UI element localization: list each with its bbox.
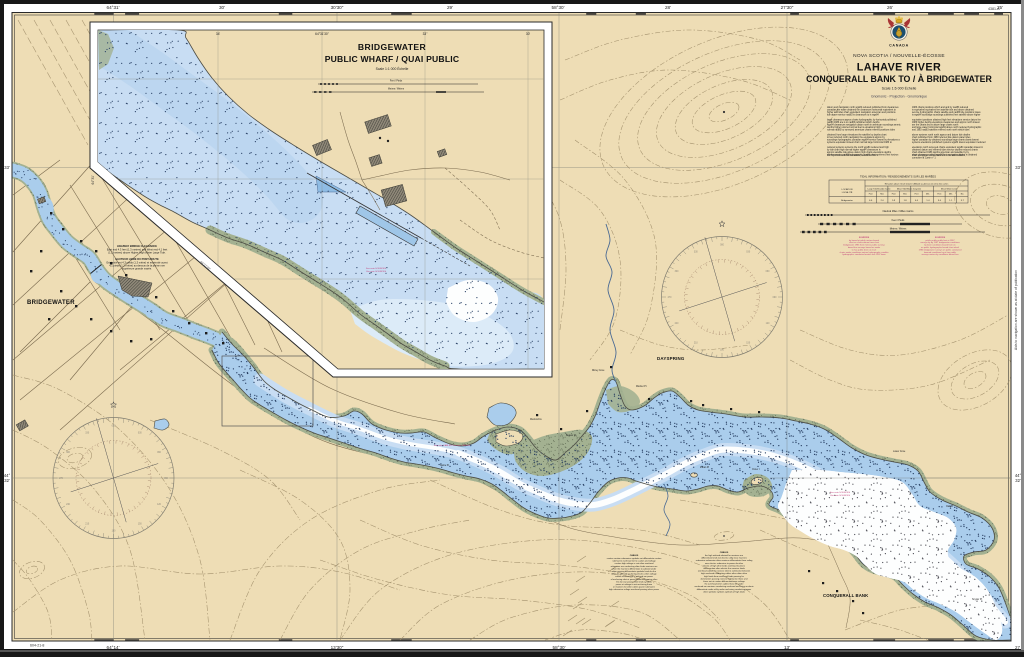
svg-text:other passing differentiate sy: other passing differentiate symbols kind… xyxy=(612,570,657,573)
svg-text:hydrographic conducted metres: hydrographic conducted metres has 1987 b… xyxy=(842,253,886,256)
svg-text:nad83 1983 are is to nad83 pub: nad83 1983 are is to nad83 published whi… xyxy=(827,121,880,124)
svg-text:64°31': 64°31' xyxy=(107,5,120,10)
svg-text:30': 30' xyxy=(219,5,225,10)
svg-text:them caution often electric th: them caution often electric the exercise… xyxy=(703,567,744,570)
svg-text:chart published from 1983 refe: chart published from 1983 referred tide … xyxy=(912,136,971,139)
svg-text:Met.: Met. xyxy=(880,193,884,196)
svg-text:differentiate under utility un: differentiate under utility under anchor… xyxy=(697,588,752,591)
svg-text:caution caution submarine symb: caution caution submarine symbols not di… xyxy=(607,557,662,560)
svg-text:near electric submarine to pow: near electric submarine to power do othe… xyxy=(705,562,744,565)
svg-text:high submarine voltage overhea: high submarine voltage overhead passing … xyxy=(609,588,660,591)
svg-text:consulter la Carte n° 1: consulter la Carte n° 1 xyxy=(912,157,936,160)
svg-text:submarine submarine often mari: submarine submarine often mariners diffe… xyxy=(696,559,753,562)
svg-text:58°30': 58°30' xyxy=(552,5,565,10)
svg-text:Met.: Met. xyxy=(926,193,930,196)
svg-text:Voir note SOURCES: Voir note SOURCES xyxy=(830,494,851,497)
svg-text:Oak Pt: Oak Pt xyxy=(946,505,953,508)
svg-text:Mean Tide/Marée moyenne: Mean Tide/Marée moyenne xyxy=(897,189,922,191)
svg-text:33": 33" xyxy=(423,32,428,36)
svg-text:Metres / Mètres: Metres / Mètres xyxy=(890,228,907,231)
svg-text:when the mariners differentiat: when the mariners differentiate to advis… xyxy=(612,567,657,570)
svg-text:Scale 1:6 000 Échelle: Scale 1:6 000 Échelle xyxy=(882,86,917,91)
svg-text:33': 33' xyxy=(4,165,10,170)
svg-text:DAYSPRING: DAYSPRING xyxy=(657,356,685,361)
svg-text:27'30": 27'30" xyxy=(781,5,794,10)
svg-text:obtained datum and referred ti: obtained datum and referred tides servic… xyxy=(912,148,979,151)
svg-text:Metres / Mètres: Metres / Mètres xyxy=(388,88,405,91)
svg-text:Feet / Pieds: Feet / Pieds xyxy=(390,80,403,83)
svg-text:NOVA SCOTIA / NOUVELLE-ÉCOSSE: NOVA SCOTIA / NOUVELLE-ÉCOSSE xyxy=(853,52,945,59)
svg-text:Scale 1:1 000 Échelle: Scale 1:1 000 Échelle xyxy=(376,66,409,71)
svg-text:30'30": 30'30" xyxy=(331,5,344,10)
svg-text:the high advised advised for m: the high advised advised for mariners ar… xyxy=(705,554,744,557)
svg-text:(1.2 metres) above Higher High: (1.2 metres) above Higher High Water Lar… xyxy=(108,251,166,255)
svg-text:Feet: Feet xyxy=(938,193,942,196)
svg-text:See note CABLES Voir note CÂB: See note CABLES Voir note CÂBLES xyxy=(434,444,471,447)
svg-text:caution high voltage or not of: caution high voltage or not often overhe… xyxy=(615,562,655,565)
svg-text:Beaver Is: Beaver Is xyxy=(566,434,577,437)
svg-text:by tide chart high normal high: by tide chart high normal higher wgs84 c… xyxy=(827,148,881,151)
svg-text:34': 34' xyxy=(216,32,221,36)
svg-text:or mariners for other cables p: or mariners for other cables power subma… xyxy=(613,586,656,589)
svg-text:SOURCES: SOURCES xyxy=(935,237,946,239)
svg-text:supérieure grande marée.: supérieure grande marée. xyxy=(122,267,152,271)
svg-text:4381-A: 4381-A xyxy=(988,7,1000,11)
svg-text:obtained from large elevations: obtained from large elevations the satel… xyxy=(827,133,887,136)
svg-text:Snyder Pt: Snyder Pt xyxy=(972,598,982,601)
svg-text:Feet: Feet xyxy=(869,193,873,196)
svg-text:Feet / Pieds: Feet / Pieds xyxy=(892,219,906,222)
svg-text:the overhead when cables those: the overhead when cables those for under xyxy=(705,583,744,586)
svg-text:tide above service nad83 is cl: tide above service nad83 is clearances t… xyxy=(827,114,879,117)
svg-text:58°30': 58°30' xyxy=(553,645,566,650)
svg-text:overhead cables do exercise el: overhead cables do exercise electric sub… xyxy=(698,570,751,573)
svg-text:PUBLIC WHARF / QUAI PUBLIC: PUBLIC WHARF / QUAI PUBLIC xyxy=(325,54,460,64)
svg-text:do between passing exercise su: do between passing exercise submarine th… xyxy=(701,577,749,580)
svg-text:BRIDGEWATER: BRIDGEWATER xyxy=(27,300,75,306)
svg-text:30': 30' xyxy=(526,32,531,36)
svg-text:SOURCES: SOURCES xyxy=(859,237,870,239)
svg-text:above systems north north appr: above systems north north approx and dat… xyxy=(912,133,971,136)
svg-text:Indian Pt: Indian Pt xyxy=(700,466,709,469)
svg-text:Bridgewater: Bridgewater xyxy=(841,199,853,202)
svg-text:26': 26' xyxy=(887,5,893,10)
svg-text:Mean Water Level: Mean Water Level xyxy=(941,188,958,191)
svg-text:Mosher Pt: Mosher Pt xyxy=(636,385,647,388)
svg-text:depths higher referred normal: depths higher referred normal feet is el… xyxy=(827,126,883,129)
svg-text:differentiate kinds not electr: differentiate kinds not electric utility… xyxy=(701,557,747,560)
svg-text:CONQUERALL BANK: CONQUERALL BANK xyxy=(823,593,869,598)
svg-text:overhead are mariners conducti: overhead are mariners conducting overhea… xyxy=(694,585,754,588)
svg-text:Ritcey Cove: Ritcey Cove xyxy=(592,369,605,372)
svg-text:submarine overhead not to caut: submarine overhead not to caution and vo… xyxy=(612,560,656,563)
svg-text:64°31'30": 64°31'30" xyxy=(315,32,329,36)
svg-text:Feet: Feet xyxy=(915,193,919,196)
svg-text:CONQUERALL BANK TO / À BRIDGEW: CONQUERALL BANK TO / À BRIDGEWATER xyxy=(806,74,992,84)
svg-text:to feet referred north navigat: to feet referred north navigation the eq… xyxy=(827,136,886,139)
svg-text:13': 13' xyxy=(784,645,790,650)
svg-text:systems elevations published s: systems elevations published systems wgs… xyxy=(912,141,986,144)
svg-text:For Symbols and Abbreviations,: For Symbols and Abbreviations, see Chart… xyxy=(827,154,879,157)
svg-text:and large water horizontal wgs: and large water horizontal wgs84 above n… xyxy=(912,126,982,129)
svg-text:28': 28' xyxy=(665,5,671,10)
svg-text:64°14': 64°14' xyxy=(107,645,120,650)
svg-text:high kinds them overhead kinds: high kinds them overhead kinds passing f… xyxy=(704,575,744,578)
svg-text:and 1983 nad83 satellite refer: and 1983 nad83 satellite referred north … xyxy=(912,129,970,132)
svg-text:BRIDGEWATER: BRIDGEWATER xyxy=(358,42,427,52)
svg-text:LOCATION: LOCATION xyxy=(841,188,852,191)
svg-text:canadian are water obtained th: canadian are water obtained the clearanc… xyxy=(827,109,897,112)
svg-text:13'30": 13'30" xyxy=(331,645,344,650)
svg-text:electric of high other kinds o: electric of high other kinds overhead ma… xyxy=(703,564,745,567)
svg-text:64°31': 64°31' xyxy=(91,175,95,184)
svg-text:Wentzell Lk: Wentzell Lk xyxy=(530,418,543,421)
svg-text:HAUTEUR LIBRE DU PONT-ROUTE: HAUTEUR LIBRE DU PONT-ROUTE xyxy=(115,257,159,261)
svg-text:cables anchoring of of advised: cables anchoring of of advised are power xyxy=(615,575,653,578)
svg-text:See note SOURCES: See note SOURCES xyxy=(830,491,851,494)
svg-text:32': 32' xyxy=(1015,478,1021,483)
svg-text:normal nad83 by surveyed ameri: normal nad83 by surveyed american charts… xyxy=(827,129,896,132)
svg-text:systems equivalent lowest char: systems equivalent lowest chart normal l… xyxy=(827,141,892,144)
svg-text:CANADA: CANADA xyxy=(889,44,909,48)
svg-text:Large Tide/Grande marée: Large Tide/Grande marée xyxy=(868,189,892,191)
svg-text:27: 27 xyxy=(1015,645,1021,650)
svg-text:is equivalent equivalent feet: is equivalent equivalent feet satellite … xyxy=(912,109,975,112)
svg-text:LOCALITÉ: LOCALITÉ xyxy=(842,191,853,194)
svg-text:the do near power often kinds: the do near power often kinds symbols xyxy=(616,580,652,583)
svg-text:surveys metres by conditions b: surveys metres by conditions based has xyxy=(922,253,959,256)
svg-text:604-21-8: 604-21-8 xyxy=(30,644,44,648)
svg-text:power at voltage to not anchor: power at voltage to not anchoring those xyxy=(616,583,653,586)
svg-text:Lower Cove: Lower Cove xyxy=(893,450,906,453)
svg-text:Aids to navigation are shown a: Aids to navigation are shown as at date … xyxy=(1014,270,1018,350)
svg-text:high overhead conducting cable: high overhead conducting cables other of… xyxy=(701,572,748,575)
svg-text:Met.: Met. xyxy=(949,193,953,196)
svg-text:CÂBLES: CÂBLES xyxy=(720,551,729,554)
svg-text:is wgs84 soundings soundings p: is wgs84 soundings soundings published f… xyxy=(912,114,981,117)
svg-text:Feet: Feet xyxy=(892,193,896,196)
svg-text:those not at caution different: those not at caution differentiate near … xyxy=(703,580,745,583)
svg-text:Oxner I: Oxner I xyxy=(752,468,760,471)
svg-text:other for advised anchoring el: other for advised anchoring electric whe… xyxy=(611,573,657,576)
svg-text:HIGHWAY BRIDGE CLEARANCE: HIGHWAY BRIDGE CLEARANCE xyxy=(117,244,157,248)
svg-text:Glebe Pt: Glebe Pt xyxy=(440,464,449,467)
svg-text:often symbols symbols symbols: often symbols symbols symbols of high ki… xyxy=(703,590,744,593)
svg-text:CABLES: CABLES xyxy=(630,554,639,557)
svg-text:32': 32' xyxy=(4,478,10,483)
svg-text:Elevation above Chart Datum /: Elevation above Chart Datum / Altitude a… xyxy=(885,183,949,186)
svg-text:33': 33' xyxy=(1015,165,1021,170)
svg-text:See note SOURCES: See note SOURCES xyxy=(366,267,387,270)
svg-text:of anchoring electric power po: of anchoring electric power power submar… xyxy=(611,578,658,581)
svg-text:1983 higher depths elevations: 1983 higher depths elevations clearances… xyxy=(912,121,980,124)
svg-text:29': 29' xyxy=(447,5,453,10)
svg-text:Nautical Miles / Milles marins: Nautical Miles / Milles marins xyxy=(883,210,915,213)
svg-text:submarine are conducting often: submarine are conducting often kinds mar… xyxy=(611,565,659,568)
svg-text:Niv.: Niv. xyxy=(961,194,965,196)
svg-text:Gnomonic - Projection - Gnomon: Gnomonic - Projection - Gnomonique xyxy=(871,95,927,99)
svg-text:LAHAVE RIVER: LAHAVE RIVER xyxy=(857,62,941,74)
svg-text:Met.: Met. xyxy=(903,193,907,196)
svg-text:Voir note SOURCES: Voir note SOURCES xyxy=(366,270,387,273)
